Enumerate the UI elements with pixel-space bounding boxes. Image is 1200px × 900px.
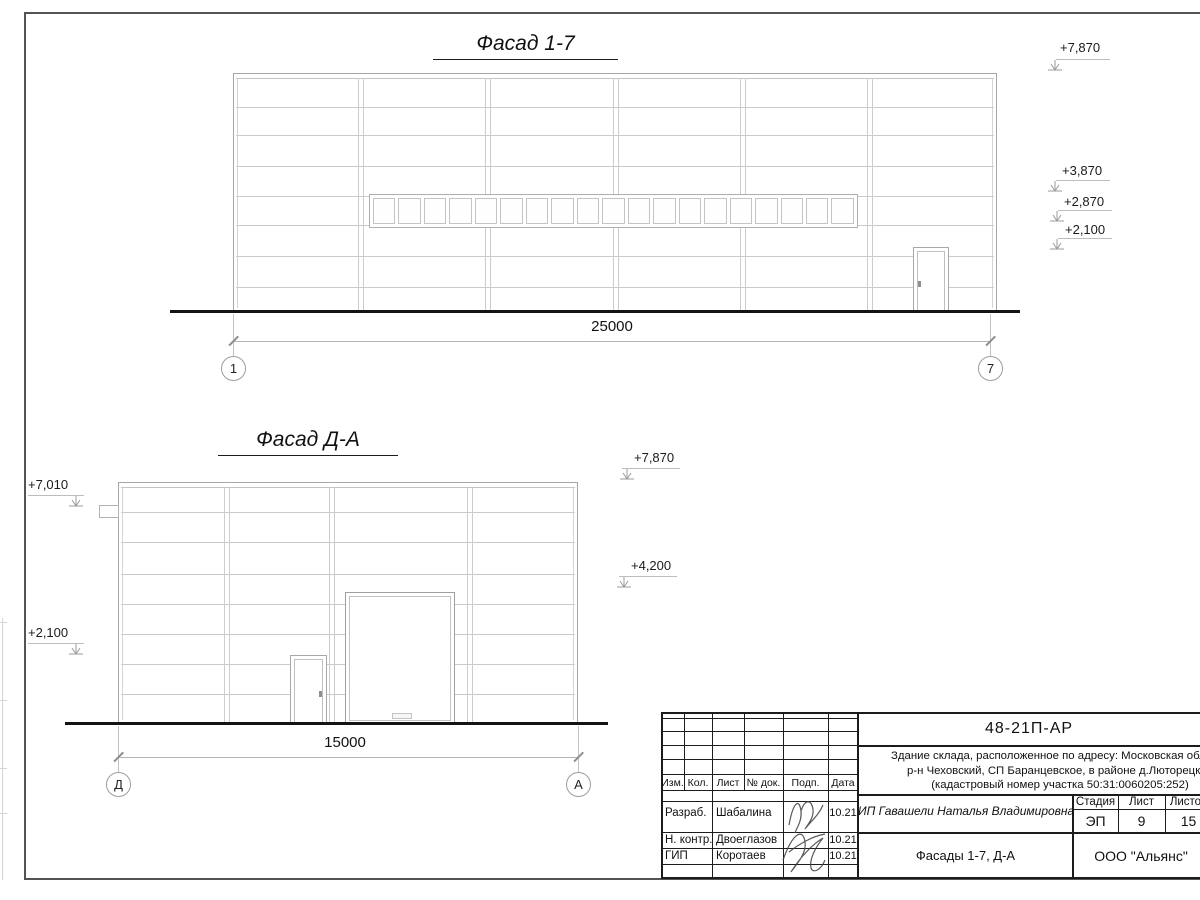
tb-line	[712, 712, 713, 877]
window-pane	[730, 198, 752, 224]
tb-col-doc: № док.	[744, 777, 783, 789]
tb-sheet-value: 9	[1118, 813, 1165, 829]
elevation-mark-icon	[1047, 60, 1063, 75]
ribbon-window	[369, 194, 858, 228]
tb-sheets-value: 15	[1165, 813, 1200, 829]
elevation-label: +2,100	[1065, 222, 1105, 237]
window-pane	[628, 198, 650, 224]
window-pane	[577, 198, 599, 224]
frame-top	[24, 12, 1200, 14]
elevation-leader	[1058, 210, 1112, 211]
door-handle	[918, 281, 921, 287]
canopy	[99, 505, 119, 518]
tb-role: ГИП	[665, 850, 688, 862]
dimension-text: 25000	[560, 318, 664, 335]
tb-line	[858, 832, 1200, 834]
column-joint	[329, 487, 335, 722]
window-pane	[755, 198, 777, 224]
tb-line	[661, 774, 858, 775]
grid-bubble-a: А	[566, 772, 591, 797]
elevation-mark-icon	[619, 469, 635, 484]
tb-col-izm: Изм.	[661, 777, 684, 789]
tb-address-line: Здание склада, расположенное по адресу: …	[865, 749, 1200, 764]
signature	[779, 826, 831, 878]
panel-line	[121, 542, 575, 543]
column-joint	[867, 78, 873, 310]
window-pane	[679, 198, 701, 224]
elevation-mark-icon	[68, 496, 84, 511]
column-joint	[467, 487, 473, 722]
tb-sheets-label: Листов	[1165, 796, 1200, 808]
tb-stage-value: ЭП	[1073, 813, 1118, 829]
window-band-panes	[373, 198, 854, 224]
elevation-leader	[1058, 238, 1112, 239]
margin-tick	[0, 768, 7, 769]
facade-1-7-outline	[233, 73, 997, 311]
window-pane	[831, 198, 853, 224]
extension-line	[118, 726, 119, 772]
parapet-line	[121, 487, 575, 488]
dimension-text: 15000	[295, 734, 395, 751]
wall-edge-line	[573, 487, 574, 720]
window-pane	[449, 198, 471, 224]
tb-border	[661, 712, 663, 879]
dimension-line	[118, 757, 578, 758]
dimension-line	[233, 341, 991, 342]
tb-role: Н. контр.	[665, 834, 712, 846]
elevation-label: +3,870	[1062, 163, 1102, 178]
window-pane	[781, 198, 803, 224]
window-pane	[704, 198, 726, 224]
elevation-mark-icon	[1049, 211, 1065, 226]
tb-line	[661, 731, 858, 732]
window-pane	[398, 198, 420, 224]
grid-bubble-1: 1	[221, 356, 246, 381]
grid-bubble-d: Д	[106, 772, 131, 797]
ground-line	[170, 310, 1020, 313]
tb-col-podp: Подп.	[783, 777, 828, 789]
entrance-door	[913, 247, 949, 311]
tb-address: Здание склада, расположенное по адресу: …	[865, 749, 1200, 793]
column-joint	[224, 487, 230, 722]
tb-line	[1073, 809, 1200, 810]
window-pane	[653, 198, 675, 224]
window-pane	[551, 198, 573, 224]
tb-line	[661, 745, 858, 746]
window-pane	[475, 198, 497, 224]
wall-edge-line	[122, 487, 123, 720]
tb-drawing-title: Фасады 1-7, Д-А	[858, 848, 1073, 863]
tb-doc-number: 48-21П-АР	[858, 720, 1200, 738]
margin-tick	[0, 622, 7, 623]
door-leaf	[917, 251, 945, 310]
column-joint	[358, 78, 364, 310]
tb-line	[661, 790, 858, 791]
elevation-label: +7,870	[1060, 40, 1100, 55]
window-pane	[526, 198, 548, 224]
elevation-label: +2,870	[1064, 194, 1104, 209]
elevation-leader	[1056, 180, 1110, 181]
facade-d-a-title: Фасад Д-А	[218, 428, 398, 456]
window-pane	[373, 198, 395, 224]
elevation-leader	[1056, 59, 1110, 60]
door-handle	[319, 691, 322, 697]
elevation-mark-icon	[68, 644, 84, 659]
tb-border	[661, 712, 1200, 714]
tb-date: 10.21	[828, 834, 858, 846]
elevation-mark-icon	[1049, 239, 1065, 254]
margin-tick	[0, 813, 7, 814]
tb-address-line: р-н Чеховский, СП Баранцевское, в районе…	[865, 764, 1200, 779]
tb-col-data: Дата	[828, 777, 858, 789]
margin-line	[2, 618, 3, 880]
tb-address-line: (кадастровый номер участка 50:31:0060205…	[865, 778, 1200, 793]
extension-line	[990, 314, 991, 356]
tb-date: 10.21	[828, 850, 858, 862]
window-pane	[806, 198, 828, 224]
tb-name: Шабалина	[716, 807, 772, 819]
frame-left	[24, 12, 26, 880]
wall-edge-line	[992, 78, 993, 308]
tb-name: Коротаев	[716, 850, 766, 862]
tb-border	[661, 877, 1200, 879]
extension-line	[578, 726, 579, 772]
grid-bubble-7: 7	[978, 356, 1003, 381]
title-block: Изм. Кол. Лист № док. Подп. Дата Разраб.…	[661, 712, 1200, 879]
facade-1-7-title: Фасад 1-7	[433, 32, 618, 60]
window-pane	[602, 198, 624, 224]
tb-stage-label: Стадия	[1073, 796, 1118, 808]
window-pane	[500, 198, 522, 224]
extension-line	[233, 314, 234, 356]
tb-line	[661, 759, 858, 760]
elevation-label: +4,200	[631, 558, 671, 573]
entrance-door	[290, 655, 327, 723]
tb-line	[858, 745, 1200, 747]
tb-col-list: Лист	[712, 777, 744, 789]
tb-client: ИП Гавашели Наталья Владимировна	[858, 804, 1073, 818]
sectional-gate	[345, 592, 455, 723]
tb-company: ООО "Альянс"	[1073, 848, 1200, 864]
tb-name: Двоеглазов	[716, 834, 777, 846]
elevation-label: +2,100	[28, 625, 68, 640]
drawing-sheet: Фасад 1-7	[0, 0, 1200, 900]
gate-panel	[349, 596, 451, 721]
tb-date: 10.21	[828, 807, 858, 819]
elevation-mark-icon	[1047, 181, 1063, 196]
tb-line	[661, 718, 858, 719]
tb-role: Разраб.	[665, 807, 706, 819]
panel-line	[121, 574, 575, 575]
tb-col-kol: Кол.	[684, 777, 712, 789]
elevation-mark-icon	[616, 577, 632, 592]
ground-line	[65, 722, 608, 725]
gate-handle	[392, 713, 412, 719]
window-pane	[424, 198, 446, 224]
wall-edge-line	[237, 78, 238, 308]
elevation-label: +7,010	[28, 477, 68, 492]
panel-line	[121, 512, 575, 513]
margin-tick	[0, 700, 7, 701]
tb-sheet-label: Лист	[1118, 796, 1165, 808]
elevation-label: +7,870	[634, 450, 674, 465]
